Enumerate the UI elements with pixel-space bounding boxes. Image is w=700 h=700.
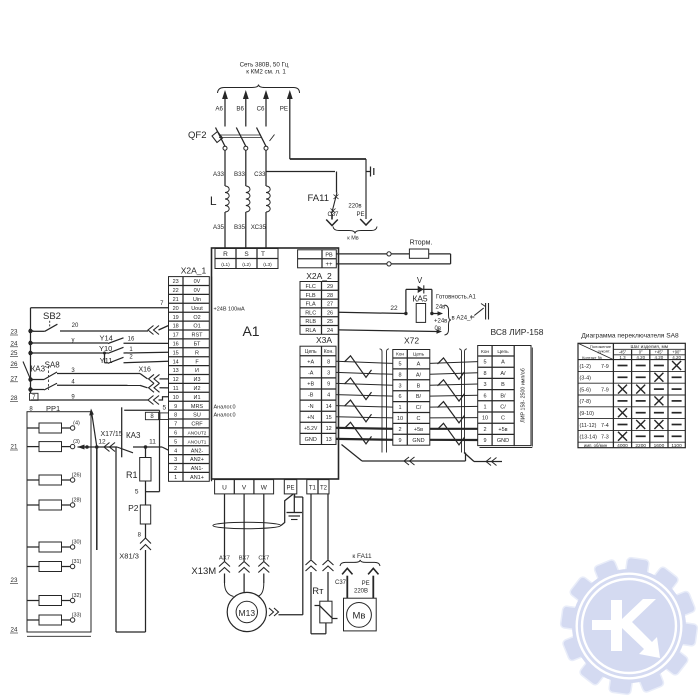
svg-text:24: 24	[11, 340, 18, 347]
svg-text:24: 24	[327, 328, 333, 334]
svg-text:RLB: RLB	[305, 319, 316, 325]
svg-text:М13: М13	[239, 608, 256, 618]
svg-text:9: 9	[174, 404, 177, 410]
svg-text:Y11: Y11	[100, 356, 113, 365]
svg-text:Цепь: Цепь	[305, 349, 317, 355]
svg-text:(30): (30)	[72, 540, 82, 546]
svg-text:+45°: +45°	[655, 350, 664, 355]
svg-text:РЕ: РЕ	[356, 212, 364, 218]
svg-text:(3): (3)	[73, 439, 80, 445]
svg-text:20: 20	[173, 306, 179, 312]
svg-text:С33: С33	[254, 171, 266, 178]
svg-text:14: 14	[173, 359, 179, 365]
svg-text:21: 21	[173, 297, 179, 303]
svg-text:Х81/3: Х81/3	[119, 552, 139, 561]
svg-text:Контакт №: Контакт №	[582, 355, 602, 360]
svg-text:Р2: Р2	[128, 503, 139, 513]
svg-text:GND: GND	[497, 438, 509, 444]
svg-text:9: 9	[398, 438, 401, 444]
svg-text:Мв: Мв	[353, 611, 366, 622]
svg-text:(4): (4)	[73, 421, 80, 427]
svg-text:КА5: КА5	[412, 294, 428, 304]
svg-text:5: 5	[174, 439, 177, 445]
svg-text:КА3: КА3	[31, 365, 46, 374]
svg-text:(L3): (L3)	[263, 262, 272, 268]
svg-text:25: 25	[11, 350, 18, 357]
svg-text:ANOUT1: ANOUT1	[188, 439, 207, 444]
svg-text:Кон: Кон	[481, 349, 489, 355]
svg-text:ЛИР 158- 2500 имп/об: ЛИР 158- 2500 имп/об	[521, 368, 527, 423]
svg-text:3: 3	[327, 371, 330, 377]
svg-text:4,20: 4,20	[636, 355, 645, 360]
svg-text:БТ: БТ	[194, 342, 201, 348]
svg-text:к КМ2 см. л. 1: к КМ2 см. л. 1	[246, 69, 286, 76]
svg-text:Х17/15: Х17/15	[101, 431, 123, 438]
svg-text:имп. об/мин: имп. об/мин	[584, 443, 608, 448]
svg-text:О2: О2	[193, 315, 200, 321]
svg-text:Y10: Y10	[99, 344, 112, 353]
svg-text:22: 22	[173, 288, 179, 294]
svg-text:12: 12	[98, 439, 106, 446]
svg-text:10: 10	[482, 416, 488, 422]
svg-text:(L1): (L1)	[221, 262, 230, 268]
svg-text:SU: SU	[193, 413, 201, 419]
svg-text:А6: А6	[215, 106, 223, 113]
svg-text:L: L	[210, 194, 217, 208]
svg-text:U: U	[222, 485, 227, 492]
svg-text:С/: С/	[416, 405, 422, 411]
svg-text:-А: -А	[308, 371, 314, 377]
svg-text:220в: 220в	[348, 204, 361, 210]
svg-text:Uout: Uout	[191, 306, 203, 312]
svg-text:В35: В35	[234, 224, 246, 231]
svg-text:220В: 220В	[354, 588, 368, 594]
svg-text:-N: -N	[308, 404, 314, 410]
svg-text:ХС35: ХС35	[251, 224, 267, 231]
svg-text:7: 7	[174, 422, 177, 428]
svg-text:С: С	[501, 416, 505, 422]
svg-text:1: 1	[398, 405, 401, 411]
svg-text:РР1: РР1	[46, 404, 60, 413]
svg-text:И3: И3	[193, 377, 200, 383]
svg-text:4,20: 4,20	[655, 355, 664, 360]
svg-text:AN2+: AN2+	[190, 457, 204, 463]
svg-text:(11-12): (11-12)	[580, 423, 597, 429]
svg-text:23: 23	[11, 329, 18, 336]
svg-text:8: 8	[398, 372, 401, 378]
svg-text:21: 21	[11, 444, 18, 451]
svg-text:AN1+: AN1+	[190, 475, 204, 481]
svg-text:А/: А/	[500, 371, 506, 377]
svg-text:27: 27	[11, 375, 18, 382]
svg-text:РВ: РВ	[325, 252, 333, 258]
svg-text:-45°: -45°	[619, 350, 627, 355]
svg-text:Т1: Т1	[309, 486, 317, 492]
svg-text:6: 6	[398, 394, 401, 400]
svg-text:10: 10	[397, 416, 403, 422]
svg-text:к FA11: к FA11	[352, 553, 372, 560]
svg-text:0V: 0V	[194, 279, 201, 285]
svg-text:(32): (32)	[72, 593, 82, 599]
svg-text:GND: GND	[412, 438, 424, 444]
svg-text:В: В	[501, 382, 505, 388]
svg-text:И: И	[195, 368, 199, 374]
svg-text:3: 3	[398, 383, 401, 389]
svg-text:AN1-: AN1-	[191, 466, 204, 472]
svg-text:Кон: Кон	[396, 352, 404, 358]
svg-text:RLC: RLC	[305, 310, 316, 316]
svg-text:Т2: Т2	[320, 486, 328, 492]
svg-text:АХ7: АХ7	[219, 556, 230, 562]
svg-text:2: 2	[398, 427, 401, 433]
svg-text:(28): (28)	[72, 498, 82, 504]
svg-text:5: 5	[398, 362, 401, 368]
svg-text:-В: -В	[308, 393, 314, 399]
svg-text:Кон.: Кон.	[324, 349, 334, 355]
svg-text:Х72: Х72	[404, 335, 419, 345]
svg-text:РЕ: РЕ	[362, 581, 370, 587]
svg-text:S: S	[244, 251, 249, 258]
svg-text:Сеть 380В, 50 Гц: Сеть 380В, 50 Гц	[240, 62, 289, 69]
svg-text:14: 14	[326, 404, 332, 410]
svg-text:24: 24	[11, 627, 18, 634]
svg-text:X16: X16	[139, 366, 152, 373]
svg-text:ВС8 ЛИР-158: ВС8 ЛИР-158	[491, 327, 544, 337]
svg-text:Т: Т	[261, 251, 265, 258]
svg-text:8: 8	[174, 413, 177, 419]
svg-text:8: 8	[483, 371, 486, 377]
svg-text:И2: И2	[193, 386, 200, 392]
svg-text:Rторм.: Rторм.	[410, 240, 433, 247]
svg-text:СХ7: СХ7	[258, 556, 269, 562]
svg-text:29: 29	[327, 284, 333, 290]
svg-text:20: 20	[72, 323, 79, 329]
svg-text:7-4: 7-4	[601, 423, 609, 429]
svg-text:QF2: QF2	[188, 130, 206, 141]
svg-text:RST: RST	[192, 333, 204, 339]
svg-text:10: 10	[173, 395, 179, 401]
svg-text:0в: 0в	[435, 326, 442, 332]
svg-text:+А: +А	[307, 359, 314, 365]
svg-text:В/: В/	[416, 394, 422, 400]
svg-text:В/: В/	[500, 393, 506, 399]
svg-text:27: 27	[327, 302, 333, 308]
svg-text:Аналог.0: Аналог.0	[214, 404, 236, 410]
svg-text:2: 2	[174, 466, 177, 472]
svg-text:С/: С/	[500, 405, 506, 411]
svg-text:W: W	[261, 485, 268, 492]
svg-text:CRF: CRF	[191, 422, 203, 428]
svg-text:23: 23	[173, 279, 179, 285]
svg-text:Аналог.0: Аналог.0	[214, 413, 236, 419]
svg-text:И1: И1	[193, 395, 200, 401]
svg-text:+90°: +90°	[672, 350, 681, 355]
svg-text:5: 5	[135, 488, 139, 495]
svg-text:РЕ: РЕ	[280, 106, 288, 113]
svg-text:+24в: +24в	[434, 319, 447, 325]
svg-text:4: 4	[174, 448, 177, 454]
svg-text:+5.2V: +5.2V	[304, 426, 318, 432]
svg-text:4: 4	[327, 393, 330, 399]
svg-text:X3А: X3А	[316, 335, 332, 345]
svg-text:SB2: SB2	[43, 311, 61, 322]
svg-text:9: 9	[327, 382, 330, 388]
svg-text:28: 28	[327, 293, 333, 299]
svg-text:7-9: 7-9	[601, 387, 609, 393]
svg-text:А: А	[501, 360, 505, 366]
svg-text:Готовность.А1: Готовность.А1	[436, 294, 476, 300]
svg-text:SA8: SA8	[45, 361, 61, 370]
svg-text:15: 15	[173, 350, 179, 356]
svg-text:рукоят.: рукоят.	[598, 348, 611, 353]
svg-text:6: 6	[483, 393, 486, 399]
svg-text:(26): (26)	[72, 473, 82, 479]
svg-text:С37: С37	[335, 580, 347, 586]
svg-text:А/: А/	[416, 372, 422, 378]
svg-text:+5в: +5в	[498, 427, 507, 433]
svg-text:1600: 1600	[654, 443, 665, 449]
svg-text:(33): (33)	[72, 613, 82, 619]
svg-text:А35: А35	[213, 224, 225, 231]
svg-text:12: 12	[326, 426, 332, 432]
svg-text:15: 15	[326, 415, 332, 421]
svg-text:(31): (31)	[72, 559, 82, 565]
svg-text:RLA: RLA	[305, 328, 316, 334]
svg-text:(L2): (L2)	[242, 262, 251, 268]
svg-text:26: 26	[327, 310, 333, 316]
svg-text:3: 3	[483, 382, 486, 388]
svg-text:5: 5	[483, 360, 486, 366]
svg-text:R1: R1	[126, 470, 138, 480]
svg-text:ВХ7: ВХ7	[239, 556, 250, 562]
svg-text:С6: С6	[257, 106, 265, 113]
svg-text:28: 28	[11, 395, 18, 402]
svg-text:Цепь: Цепь	[413, 352, 425, 358]
svg-text:X2А_1: X2А_1	[181, 266, 207, 276]
svg-text:(5-6): (5-6)	[580, 387, 592, 393]
svg-text:ANOUT2: ANOUT2	[188, 431, 207, 436]
svg-text:Диаграмма переключателя SA8: Диаграмма переключателя SA8	[581, 333, 679, 340]
svg-text:к Мв: к Мв	[347, 236, 359, 242]
svg-text:3: 3	[174, 457, 177, 463]
svg-text:16: 16	[173, 342, 179, 348]
svg-text:А1: А1	[242, 323, 259, 339]
svg-text:КА3: КА3	[126, 431, 141, 440]
svg-text:FLB: FLB	[306, 293, 316, 299]
svg-text:2200: 2200	[635, 443, 646, 449]
svg-text:4000: 4000	[617, 443, 628, 449]
svg-text:В6: В6	[236, 106, 244, 113]
svg-text:0°: 0°	[639, 350, 643, 355]
svg-text:GND: GND	[305, 437, 317, 443]
svg-text:+24В 100мА: +24В 100мА	[214, 307, 245, 313]
svg-text:(1-2): (1-2)	[580, 364, 592, 370]
svg-text:13: 13	[326, 437, 332, 443]
svg-text:С: С	[417, 416, 421, 422]
svg-text:11: 11	[173, 386, 179, 392]
svg-text:2: 2	[483, 427, 486, 433]
svg-text:(13-14): (13-14)	[580, 435, 598, 441]
svg-text:О1: О1	[193, 324, 200, 330]
svg-text:Rт: Rт	[312, 586, 324, 597]
svg-text:16: 16	[128, 337, 135, 343]
svg-text:1: 1	[174, 475, 177, 481]
svg-text:12: 12	[173, 377, 179, 383]
svg-text:19: 19	[173, 315, 179, 321]
svg-text:5: 5	[162, 405, 166, 412]
svg-text:MRS: MRS	[191, 404, 204, 410]
svg-text:8: 8	[327, 359, 330, 365]
svg-text:В: В	[417, 383, 421, 389]
svg-text:V: V	[417, 276, 423, 285]
svg-text:7-3: 7-3	[601, 435, 609, 441]
svg-text:25: 25	[327, 319, 333, 325]
svg-text:24в: 24в	[436, 305, 446, 311]
svg-text:(3-4): (3-4)	[580, 376, 592, 382]
svg-text:0V: 0V	[194, 288, 201, 294]
svg-text:Uin: Uin	[193, 297, 201, 303]
svg-text:26: 26	[11, 361, 18, 368]
svg-text:23: 23	[11, 577, 18, 584]
svg-text:AN2-: AN2-	[191, 448, 204, 454]
svg-text:4,20: 4,20	[672, 355, 681, 360]
svg-text:Y14: Y14	[100, 334, 113, 343]
svg-text:FLC: FLC	[306, 284, 316, 290]
svg-text:V: V	[242, 485, 247, 492]
svg-text:(9-10): (9-10)	[580, 411, 595, 417]
svg-text:17: 17	[173, 333, 179, 339]
svg-text:1,3: 1,3	[619, 355, 626, 360]
svg-text:А33: А33	[213, 171, 225, 178]
svg-text:13: 13	[173, 368, 179, 374]
svg-text:(7-8): (7-8)	[580, 399, 592, 405]
svg-text:РЕ: РЕ	[286, 486, 294, 492]
svg-text:FA11: FA11	[308, 193, 329, 204]
svg-text:А: А	[417, 362, 421, 368]
svg-text:R: R	[195, 350, 199, 356]
svg-text:Цепь: Цепь	[497, 349, 509, 355]
svg-text:+5в: +5в	[414, 427, 423, 433]
svg-text:R: R	[223, 251, 228, 258]
svg-text:Х13М: Х13М	[191, 566, 216, 577]
svg-text:18: 18	[173, 324, 179, 330]
svg-text:+В: +В	[307, 382, 314, 388]
svg-text:11: 11	[149, 438, 156, 445]
svg-text:у: у	[72, 338, 75, 344]
svg-text:В33: В33	[234, 171, 246, 178]
svg-text:7-9: 7-9	[601, 364, 609, 370]
svg-text:в А24_I: в А24_I	[452, 316, 473, 322]
svg-text:X2A_2: X2A_2	[306, 271, 332, 281]
svg-text:+N: +N	[307, 415, 314, 421]
svg-text:1100: 1100	[671, 443, 682, 449]
svg-text:FLA: FLA	[306, 302, 316, 308]
svg-text:1: 1	[483, 405, 486, 411]
svg-text:С37: С37	[327, 212, 339, 218]
svg-text:22: 22	[390, 305, 398, 312]
svg-text:6: 6	[174, 431, 177, 437]
svg-text:9: 9	[483, 438, 486, 444]
svg-text:++: ++	[325, 262, 333, 268]
